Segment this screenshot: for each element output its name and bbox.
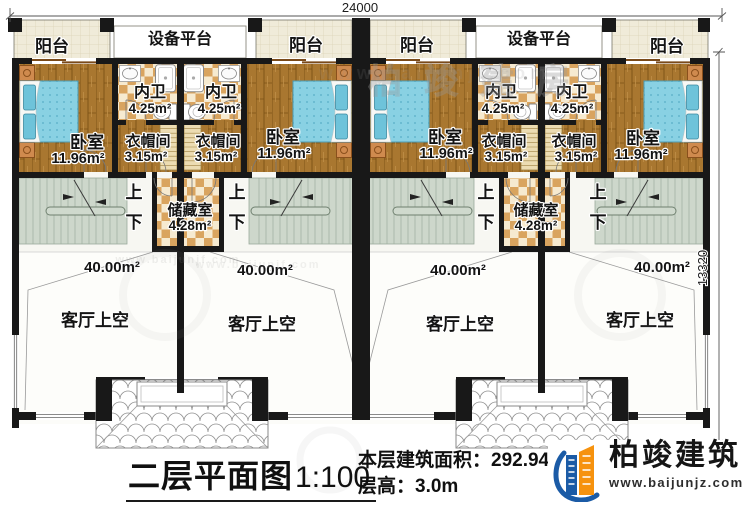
brand-logo: 柏竣建筑 www.baijunjz.com — [548, 440, 744, 502]
plan-info-block: 本层建筑面积：292.94㎡ 层高：3.0m — [358, 448, 568, 500]
label-balcony-4: 阳台 — [650, 36, 684, 56]
area-cloak-2: 3.15m² — [195, 149, 238, 164]
floor-plan-page: 24000 13320 阳台 阳台 阳台 阳台 设备平台 设备平台 内卫 4.2… — [0, 0, 750, 512]
area-bath-3: 4.25m² — [482, 101, 525, 116]
stair-2 — [249, 178, 357, 244]
area-cloak-1: 3.15m² — [125, 149, 168, 164]
floor-plan-drawing: 24000 13320 阳台 阳台 阳台 阳台 设备平台 设备平台 内卫 4.2… — [0, 0, 750, 512]
area-bath-2: 4.25m² — [198, 101, 241, 116]
label-bedroom-2: 卧室 — [266, 127, 300, 147]
label-void-1: 客厅上空 — [60, 310, 129, 330]
label-bath-2: 内卫 — [205, 82, 237, 101]
area-bedroom-4: 11.96m² — [614, 147, 667, 163]
plan-title-block: 二层平面图1:100 — [126, 451, 376, 502]
stair-3 — [366, 178, 474, 244]
label-balcony-1: 阳台 — [35, 36, 69, 56]
stair-4 — [595, 178, 703, 244]
label-up-4: 上 — [590, 183, 607, 202]
label-up-3: 上 — [478, 183, 495, 202]
label-void-4: 客厅上空 — [605, 310, 674, 330]
label-bath-1: 内卫 — [134, 82, 166, 101]
brand-name: 柏竣建筑 — [609, 440, 744, 472]
label-void-2: 客厅上空 — [227, 314, 296, 334]
stair-1 — [19, 178, 127, 244]
label-bedroom-3: 卧室 — [428, 127, 462, 147]
area-cloak-3: 3.15m² — [485, 149, 528, 164]
area-cloak-4: 3.15m² — [555, 149, 598, 164]
label-cloak-2: 衣帽间 — [195, 132, 240, 150]
watermark-site-3: www.baijunjf.com — [194, 259, 320, 271]
area-bath-1: 4.25m² — [129, 101, 172, 116]
label-bedroom-1: 卧室 — [70, 132, 104, 152]
label-down-2: 下 — [229, 213, 246, 232]
label-bedroom-4: 卧室 — [626, 128, 660, 148]
label-balcony-2: 阳台 — [289, 35, 323, 55]
label-void-3: 客厅上空 — [425, 314, 494, 334]
label-equipment-2: 设备平台 — [507, 29, 571, 48]
label-cloak-1: 衣帽间 — [125, 132, 170, 150]
plan-title: 二层平面图 — [128, 458, 293, 494]
floor-area-line: 本层建筑面积：292.94㎡ — [358, 448, 568, 474]
watermark-brand: 柏竣建房 — [368, 62, 592, 101]
label-cloak-3: 衣帽间 — [481, 132, 526, 150]
floor-height-line: 层高：3.0m — [358, 474, 568, 500]
label-balcony-3: 阳台 — [400, 35, 434, 55]
area-bedroom-3: 11.96m² — [419, 146, 472, 162]
area-bedroom-1: 11.96m² — [51, 151, 104, 167]
label-storage-1: 储藏室 — [167, 201, 212, 219]
area-storage-2: 4.28m² — [515, 218, 558, 233]
label-up-1: 上 — [126, 183, 143, 202]
brand-logo-icon — [552, 440, 604, 502]
label-cloak-4: 衣帽间 — [551, 132, 596, 150]
dim-width-label: 24000 — [342, 0, 378, 15]
label-storage-2: 储藏室 — [513, 201, 558, 219]
label-equipment-1: 设备平台 — [148, 29, 212, 48]
area-bedroom-2: 11.96m² — [257, 146, 310, 162]
area-storage-1: 4.28m² — [169, 218, 212, 233]
label-down-3: 下 — [478, 213, 495, 232]
label-down-4: 下 — [590, 213, 607, 232]
area-void-3: 40.00m² — [430, 262, 486, 279]
dim-height-label: 13320 — [695, 250, 710, 286]
brand-website: www.baijunjz.com — [609, 475, 744, 490]
label-down-1: 下 — [126, 213, 143, 232]
area-bath-4: 4.25m² — [551, 101, 594, 116]
label-up-2: 上 — [229, 183, 246, 202]
